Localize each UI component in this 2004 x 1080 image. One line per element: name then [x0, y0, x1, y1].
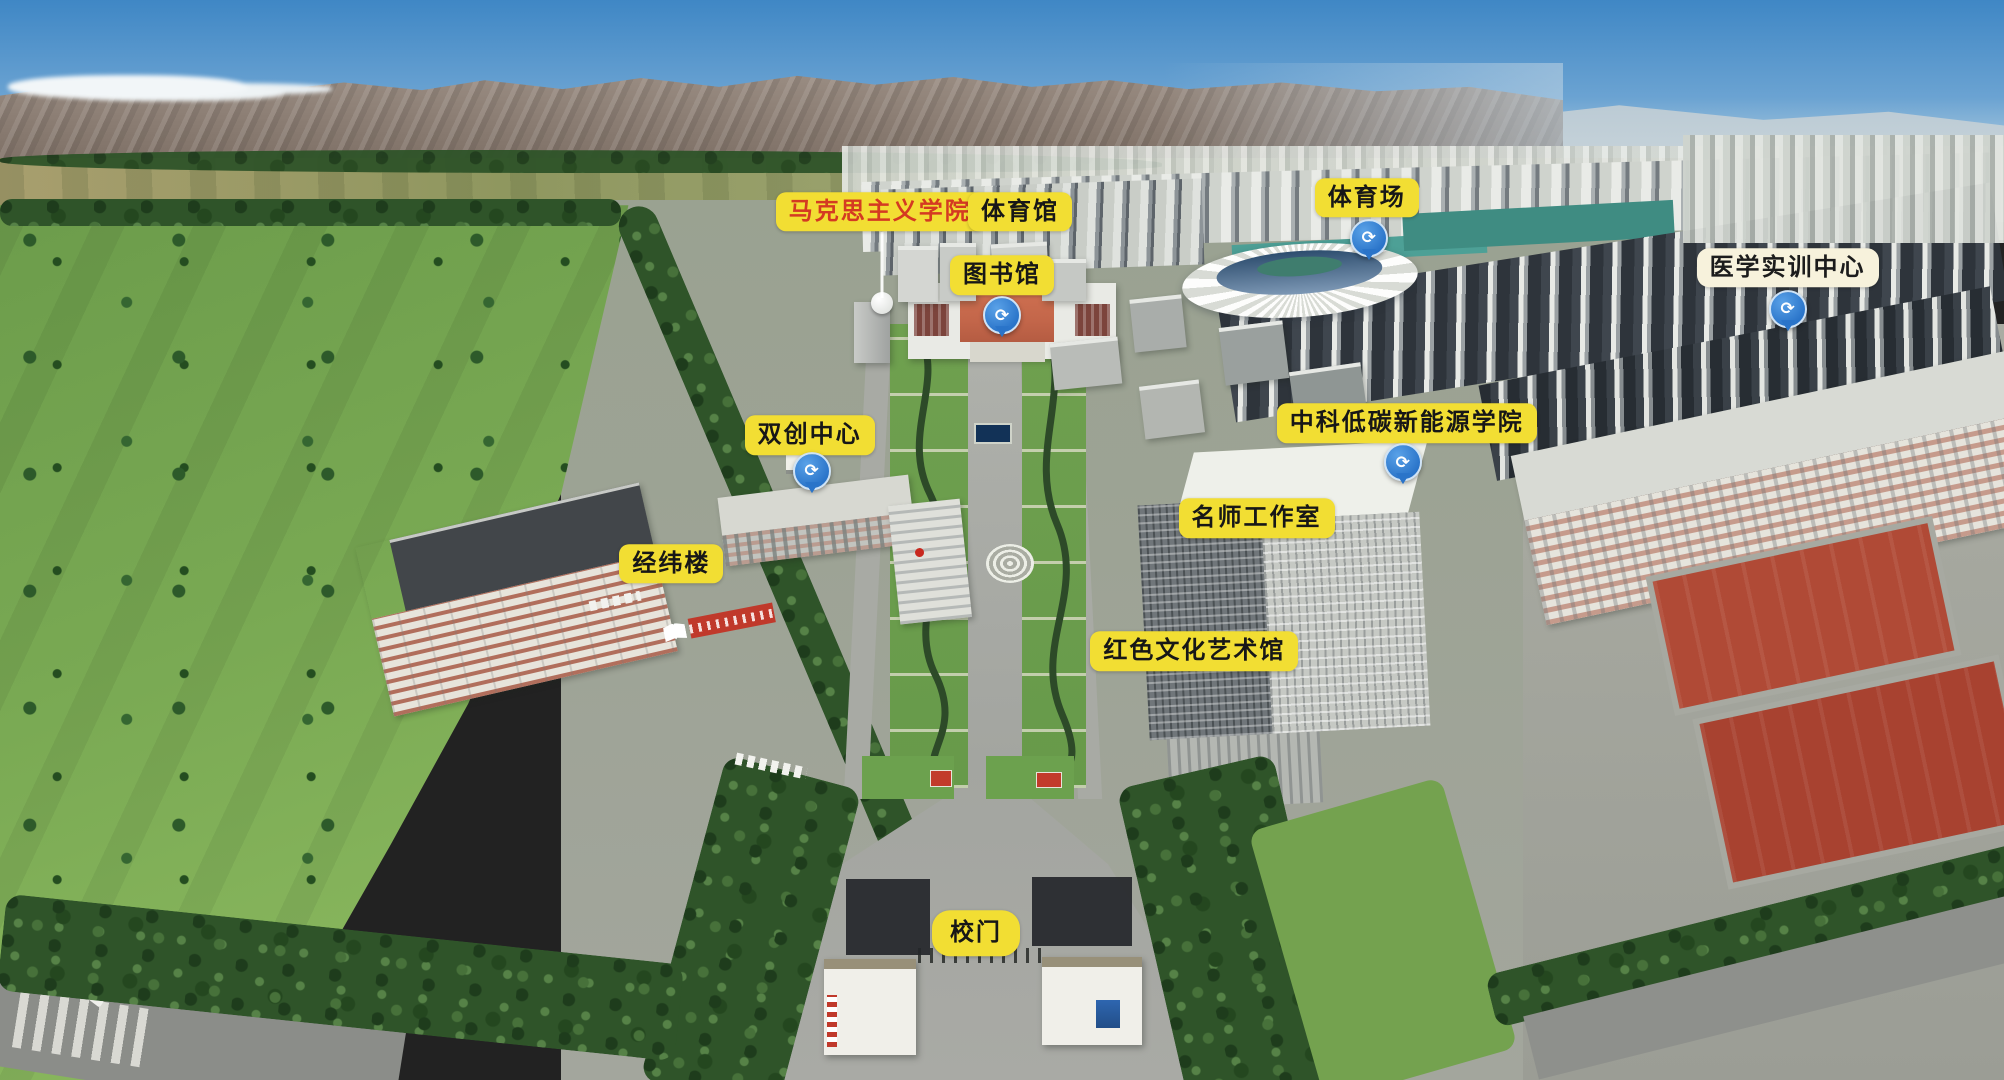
leader-line-marxism-college	[880, 232, 883, 298]
label-innovation-center[interactable]: 双创中心	[745, 415, 875, 455]
panorama-rotate-icon: ⟳	[1362, 229, 1376, 246]
panorama-rotate-icon: ⟳	[1396, 454, 1410, 471]
label-library[interactable]: 图书馆	[950, 256, 1054, 296]
studio-panorama-pin-icon[interactable]: ⟳	[1384, 443, 1422, 481]
annotation-layer: ⟳⟳⟳⟳⟳马克思主义学院体育馆体育场图书馆医学实训中心双创中心中科低碳新能源学院…	[0, 0, 2004, 1080]
library-panorama-pin-icon[interactable]: ⟳	[983, 296, 1021, 334]
label-stadium[interactable]: 体育场	[1315, 178, 1419, 218]
label-cas-low-carbon-college[interactable]: 中科低碳新能源学院	[1277, 404, 1537, 444]
label-medical-training-center[interactable]: 医学实训中心	[1697, 248, 1879, 288]
label-gymnasium[interactable]: 体育馆	[968, 192, 1072, 232]
label-school-gate[interactable]: 校门	[932, 910, 1020, 956]
label-red-culture-art-museum[interactable]: 红色文化艺术馆	[1090, 631, 1298, 671]
panorama-rotate-icon: ⟳	[995, 307, 1009, 324]
innovation-panorama-pin-icon[interactable]: ⟳	[793, 452, 831, 490]
medical-panorama-pin-icon[interactable]: ⟳	[1769, 290, 1807, 328]
campus-aerial-view: ⟳⟳⟳⟳⟳马克思主义学院体育馆体育场图书馆医学实训中心双创中心中科低碳新能源学院…	[0, 0, 2004, 1080]
label-master-teacher-studio[interactable]: 名师工作室	[1179, 499, 1335, 539]
stadium-panorama-pin-icon[interactable]: ⟳	[1350, 219, 1388, 257]
label-jingwei-building[interactable]: 经纬楼	[619, 544, 723, 584]
label-marxism-college[interactable]: 马克思主义学院	[776, 192, 984, 232]
panorama-rotate-icon: ⟳	[1780, 300, 1794, 317]
panorama-rotate-icon: ⟳	[804, 462, 818, 479]
